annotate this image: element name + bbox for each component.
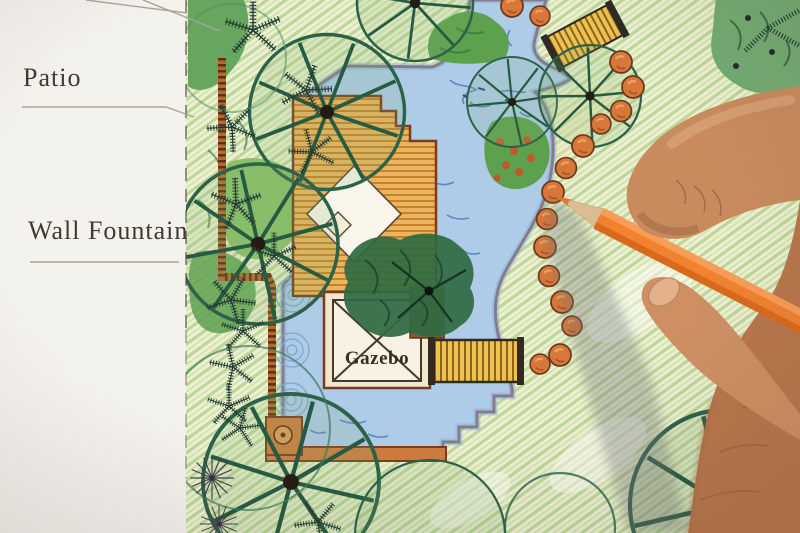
garden-plan-photo: Gazebo Patio Wall Fountain <box>0 0 800 533</box>
photo-vignette <box>0 0 800 533</box>
